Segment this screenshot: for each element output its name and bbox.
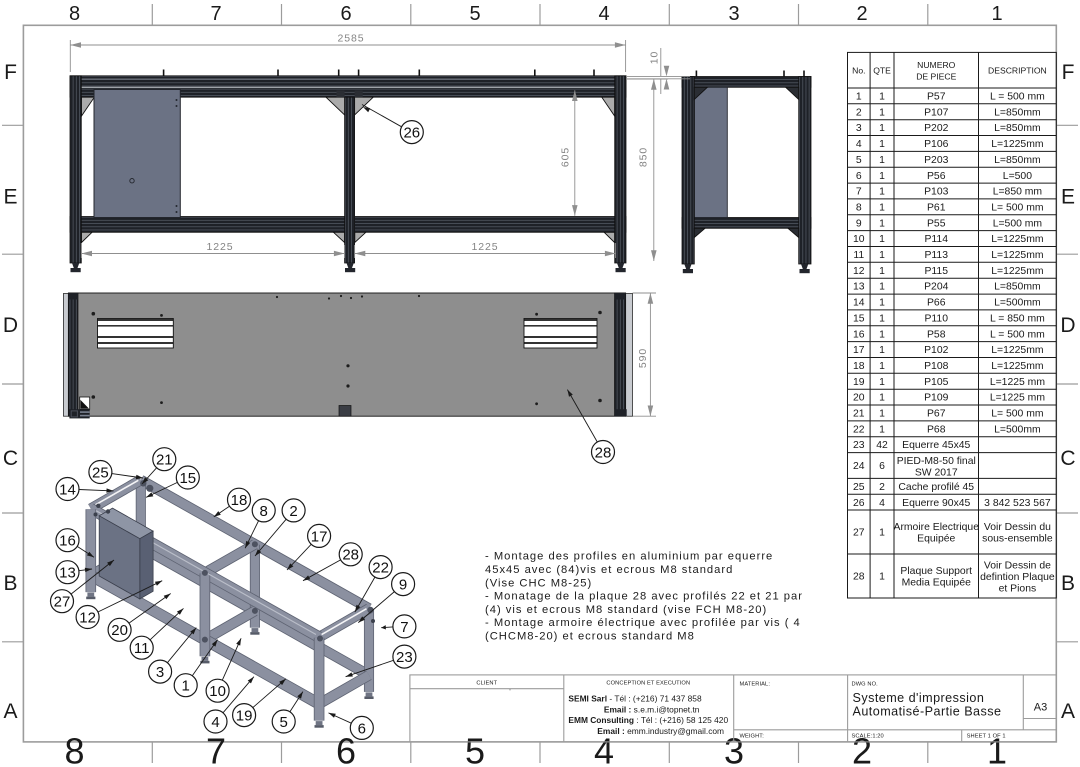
svg-text:B: B [3, 572, 17, 595]
svg-text:Equerre 90x45: Equerre 90x45 [902, 498, 970, 509]
svg-text:L=850mm: L=850mm [994, 123, 1041, 134]
svg-text:1: 1 [182, 678, 190, 695]
svg-text:19: 19 [853, 377, 865, 388]
svg-text:1: 1 [991, 3, 1002, 25]
svg-text:5: 5 [465, 731, 485, 767]
svg-text:8: 8 [856, 203, 862, 214]
svg-text:NUMERO: NUMERO [917, 60, 956, 70]
svg-text:SW 2017: SW 2017 [915, 468, 958, 479]
svg-text:23: 23 [853, 440, 865, 451]
svg-text:10: 10 [649, 51, 661, 64]
svg-text:14: 14 [59, 481, 76, 498]
svg-text:- Montage armoire électrique a: - Montage armoire électrique avec profil… [485, 617, 801, 629]
svg-text:QTE: QTE [873, 66, 891, 76]
svg-text:L= 500 mm: L= 500 mm [991, 203, 1043, 214]
svg-text:1: 1 [879, 234, 885, 245]
svg-text:L=500: L=500 [1003, 171, 1032, 182]
svg-text:10: 10 [209, 683, 226, 700]
svg-text:- Montage des profiles en alum: - Montage des profiles en aluminium par … [485, 551, 773, 563]
svg-text:25: 25 [92, 464, 109, 481]
svg-text:- Monatage de la plaque 28 ave: - Monatage de la plaque 28 avec profilés… [485, 591, 803, 603]
svg-text:28: 28 [595, 444, 612, 461]
svg-text:6: 6 [856, 171, 862, 182]
svg-text:12: 12 [853, 266, 865, 277]
svg-text:et Pions: et Pions [999, 584, 1037, 595]
svg-text:Armoire Electrique: Armoire Electrique [894, 522, 980, 533]
svg-text:24: 24 [853, 461, 865, 472]
svg-text:L=1225mm: L=1225mm [991, 234, 1043, 245]
svg-text:P66: P66 [927, 298, 946, 309]
svg-text:27: 27 [853, 528, 865, 539]
svg-text:B: B [1061, 572, 1075, 595]
svg-text:1: 1 [879, 361, 885, 372]
svg-text:P67: P67 [927, 409, 946, 420]
svg-text:L=500 mm: L=500 mm [993, 218, 1042, 229]
svg-text:Email : s.e.m.i@topnet.tn: Email : s.e.m.i@topnet.tn [604, 704, 700, 714]
svg-text:(CHCM8-20) et ecrous standard: (CHCM8-20) et ecrous standard M8 [485, 631, 695, 643]
svg-text:Equerre 45x45: Equerre 45x45 [902, 440, 970, 451]
svg-text:15: 15 [853, 313, 865, 324]
svg-text:L=850mm: L=850mm [994, 107, 1041, 118]
svg-text:3: 3 [728, 3, 739, 25]
svg-text:L=1225mm: L=1225mm [991, 250, 1043, 261]
svg-text:4: 4 [856, 139, 862, 150]
svg-text:1: 1 [879, 313, 885, 324]
svg-text:2: 2 [856, 107, 862, 118]
svg-text:L=850mm: L=850mm [994, 282, 1041, 293]
svg-text:P68: P68 [927, 424, 946, 435]
svg-text:1: 1 [879, 123, 885, 134]
svg-text:10: 10 [853, 234, 865, 245]
svg-text:P108: P108 [924, 361, 948, 372]
svg-text:3 842 523 567: 3 842 523 567 [984, 498, 1051, 509]
svg-text:8: 8 [69, 3, 80, 25]
svg-text:1225: 1225 [472, 241, 499, 253]
svg-text:27: 27 [54, 594, 71, 611]
svg-text:20: 20 [111, 622, 128, 639]
svg-text:D: D [3, 314, 18, 337]
svg-text:P103: P103 [924, 187, 948, 198]
svg-text:9: 9 [399, 577, 407, 594]
svg-text:A: A [3, 700, 17, 723]
svg-text:P203: P203 [924, 155, 948, 166]
svg-text:L=500mm: L=500mm [994, 298, 1041, 309]
svg-text:F: F [1062, 61, 1075, 84]
svg-text:E: E [1061, 186, 1075, 209]
svg-text:Systeme d'impression: Systeme d'impression [853, 691, 985, 705]
svg-text:sous-ensemble: sous-ensemble [982, 534, 1053, 545]
svg-text:Voir Dessin de: Voir Dessin de [984, 561, 1051, 572]
svg-text:C: C [3, 447, 18, 470]
svg-text:(4) vis et ecrous M8 standard: (4) vis et ecrous M8 standard (vise FCH … [485, 604, 767, 616]
svg-text:1: 1 [879, 393, 885, 404]
svg-text:19: 19 [236, 708, 253, 725]
svg-text:21: 21 [156, 452, 173, 469]
svg-text:1: 1 [879, 282, 885, 293]
svg-text:1: 1 [879, 266, 885, 277]
svg-text:WEIGHT:: WEIGHT: [740, 733, 765, 739]
svg-text:22: 22 [853, 424, 865, 435]
svg-text:3: 3 [856, 123, 862, 134]
svg-text:No.: No. [852, 66, 865, 76]
svg-text:L=1225mm: L=1225mm [991, 361, 1043, 372]
svg-text:P58: P58 [927, 329, 946, 340]
svg-text:18: 18 [853, 361, 865, 372]
svg-text:SHEET 1 OF 1: SHEET 1 OF 1 [967, 733, 1006, 739]
svg-text:P102: P102 [924, 345, 948, 356]
svg-text:A: A [1061, 700, 1075, 723]
svg-text:15: 15 [179, 470, 196, 487]
svg-text:1: 1 [879, 572, 885, 583]
svg-text:605: 605 [559, 147, 571, 167]
svg-text:F: F [4, 61, 17, 84]
svg-text:P204: P204 [924, 282, 948, 293]
svg-text:L=1225mm: L=1225mm [991, 345, 1043, 356]
svg-text:P55: P55 [927, 218, 946, 229]
svg-text:12: 12 [79, 609, 96, 626]
svg-text:2585: 2585 [338, 33, 365, 45]
svg-text:P106: P106 [924, 139, 948, 150]
svg-text:L=500mm: L=500mm [994, 424, 1041, 435]
svg-text:5: 5 [280, 714, 288, 731]
svg-text:1: 1 [879, 139, 885, 150]
svg-text:L = 850 mm: L = 850 mm [990, 313, 1045, 324]
svg-text:A3: A3 [1034, 702, 1047, 714]
svg-text:L = 500 mm: L = 500 mm [990, 329, 1045, 340]
svg-text:7: 7 [400, 619, 408, 636]
svg-text:E: E [3, 186, 17, 209]
svg-text:C: C [1060, 447, 1075, 470]
svg-text:26: 26 [403, 125, 420, 142]
svg-text:P114: P114 [925, 234, 949, 245]
svg-text:2: 2 [856, 3, 867, 25]
svg-text:9: 9 [856, 218, 862, 229]
svg-text:P107: P107 [924, 107, 948, 118]
svg-text:1: 1 [879, 203, 885, 214]
svg-text:17: 17 [311, 528, 328, 545]
svg-text:PIED-M8-50 final: PIED-M8-50 final [897, 456, 976, 467]
svg-text:28: 28 [342, 547, 359, 564]
svg-text:L=1225mm: L=1225mm [991, 266, 1043, 277]
svg-text:P110: P110 [925, 313, 949, 324]
svg-text:18: 18 [231, 492, 248, 509]
svg-text:4: 4 [211, 714, 219, 731]
svg-text:6: 6 [358, 720, 366, 737]
svg-text:P56: P56 [927, 171, 946, 182]
svg-text:1: 1 [879, 345, 885, 356]
svg-text:(Vise CHC M8-25): (Vise CHC M8-25) [485, 577, 592, 589]
svg-text:defintion Plaque: defintion Plaque [980, 572, 1055, 583]
svg-text:26: 26 [853, 498, 865, 509]
svg-text:7: 7 [856, 187, 862, 198]
svg-text:45x45 avec (84)vis et ecrous M: 45x45 avec (84)vis et ecrous M8 standard [485, 564, 733, 576]
svg-text:P105: P105 [924, 377, 948, 388]
svg-text:6: 6 [879, 461, 885, 472]
svg-text:4: 4 [879, 498, 885, 509]
svg-text:L=850mm: L=850mm [994, 155, 1041, 166]
svg-text:14: 14 [853, 298, 865, 309]
svg-text:1: 1 [879, 250, 885, 261]
svg-text:P115: P115 [925, 266, 949, 277]
svg-text:DE PIECE: DE PIECE [916, 72, 956, 82]
svg-text:13: 13 [853, 282, 865, 293]
svg-text:28: 28 [853, 572, 865, 583]
svg-text:CLIENT: CLIENT [476, 681, 497, 687]
svg-text:20: 20 [853, 393, 865, 404]
svg-text:2: 2 [879, 482, 885, 493]
svg-text:11: 11 [134, 640, 150, 657]
svg-text:1225: 1225 [207, 241, 234, 253]
svg-text:1: 1 [879, 155, 885, 166]
svg-text:P57: P57 [927, 92, 946, 103]
svg-text:6: 6 [340, 3, 351, 25]
svg-text:P61: P61 [927, 203, 946, 214]
svg-text:MATERIAL:: MATERIAL: [740, 681, 771, 687]
svg-text:L=850 mm: L=850 mm [993, 187, 1042, 198]
svg-text:1: 1 [879, 377, 885, 388]
svg-text:13: 13 [59, 565, 76, 582]
svg-text:5: 5 [856, 155, 862, 166]
svg-text:DWG NO.: DWG NO. [852, 681, 879, 687]
svg-text:8: 8 [64, 731, 84, 767]
svg-text:11: 11 [853, 250, 864, 261]
svg-text:4: 4 [594, 731, 614, 767]
svg-text:4: 4 [598, 3, 609, 25]
svg-text:850: 850 [638, 147, 650, 167]
svg-text:DESCRIPTION: DESCRIPTION [988, 66, 1047, 76]
svg-text:P113: P113 [925, 250, 949, 261]
svg-text:1: 1 [856, 92, 862, 103]
svg-text:CONCEPTION ET EXECUTION: CONCEPTION ET EXECUTION [606, 681, 690, 687]
svg-text:16: 16 [59, 533, 76, 550]
svg-text:25: 25 [853, 482, 865, 493]
svg-text:1: 1 [879, 218, 885, 229]
svg-text:17: 17 [853, 345, 865, 356]
svg-text:Email : emm.industry@gmail.com: Email : emm.industry@gmail.com [597, 726, 724, 736]
svg-text:P202: P202 [924, 123, 948, 134]
svg-text:8: 8 [260, 503, 268, 520]
svg-text:3: 3 [156, 664, 164, 681]
svg-text:Plaque Support: Plaque Support [900, 566, 972, 577]
svg-text:1: 1 [879, 92, 885, 103]
svg-text:Equipée: Equipée [917, 534, 955, 545]
svg-text:SCALE:1:20: SCALE:1:20 [852, 733, 884, 739]
svg-text:42: 42 [876, 440, 888, 451]
svg-text:1: 1 [879, 171, 885, 182]
svg-text:7: 7 [210, 3, 221, 25]
svg-text:L=1225 mm: L=1225 mm [990, 377, 1045, 388]
svg-text:L=1225mm: L=1225mm [991, 139, 1043, 150]
svg-text:16: 16 [853, 329, 865, 340]
svg-text:EMM Consulting : Tél : (+216): EMM Consulting : Tél : (+216) 58 125 420 [568, 715, 728, 725]
svg-text:1: 1 [879, 298, 885, 309]
svg-text:7: 7 [206, 731, 226, 767]
svg-text:590: 590 [637, 348, 649, 368]
svg-text:1: 1 [879, 329, 885, 340]
svg-text:21: 21 [853, 409, 865, 420]
svg-text:P109: P109 [924, 393, 948, 404]
svg-text:1: 1 [879, 424, 885, 435]
svg-text:SEMI Sarl - Tél : (+216) 71 43: SEMI Sarl - Tél : (+216) 71 437 858 [568, 694, 702, 704]
svg-text:Cache profilé 45: Cache profilé 45 [898, 482, 974, 493]
svg-text:Voir Dessin du: Voir Dessin du [984, 522, 1051, 533]
svg-text:22: 22 [372, 560, 389, 577]
svg-text:1: 1 [879, 528, 885, 539]
svg-text:L=1225 mm: L=1225 mm [990, 393, 1045, 404]
svg-text:L= 500 mm: L= 500 mm [991, 409, 1043, 420]
svg-text:5: 5 [469, 3, 480, 25]
svg-text:D: D [1060, 314, 1075, 337]
svg-text:Automatisé-Partie Basse: Automatisé-Partie Basse [853, 704, 1002, 718]
svg-text:L = 500 mm: L = 500 mm [990, 92, 1045, 103]
svg-text:2: 2 [289, 503, 297, 520]
svg-text:Media Equipée: Media Equipée [902, 578, 972, 589]
svg-text:23: 23 [396, 649, 413, 666]
svg-text:1: 1 [879, 187, 885, 198]
svg-text:1: 1 [879, 107, 885, 118]
svg-text:1: 1 [879, 409, 885, 420]
